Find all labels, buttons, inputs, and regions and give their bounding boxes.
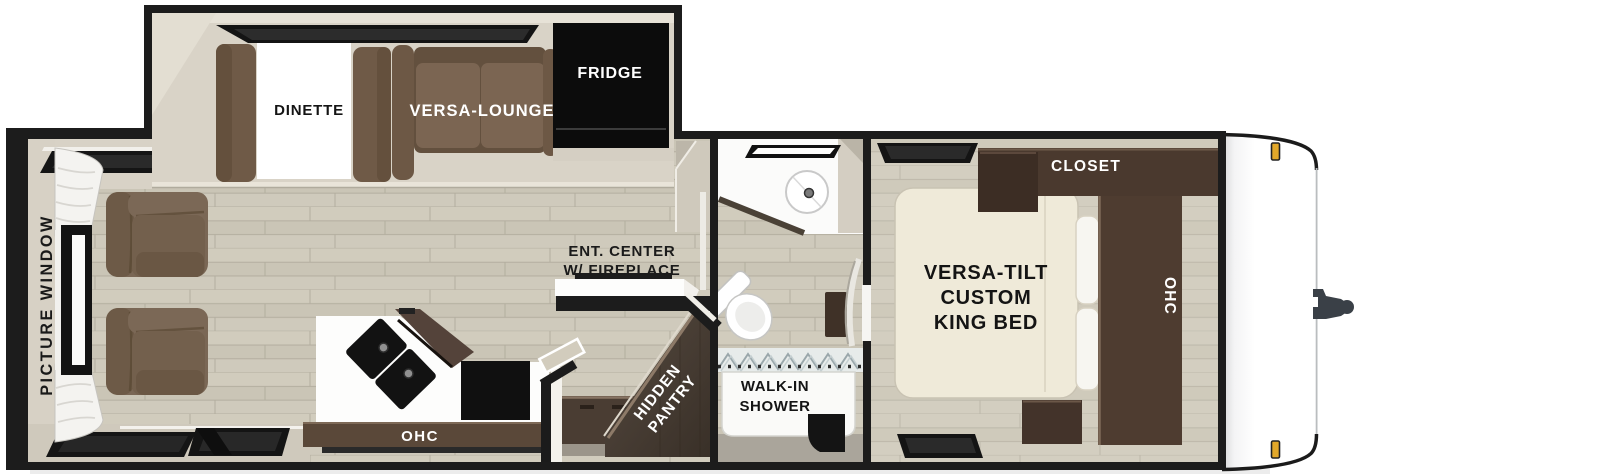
svg-text:CLOSET: CLOSET [1051,158,1121,175]
svg-text:ENT. CENTER: ENT. CENTER [568,243,675,260]
svg-text:DINETTE: DINETTE [274,102,344,119]
svg-text:OHC: OHC [1161,277,1178,315]
svg-text:W/ FIREPLACE: W/ FIREPLACE [563,262,680,279]
svg-text:CUSTOM: CUSTOM [940,287,1031,309]
svg-text:FRIDGE: FRIDGE [577,65,642,82]
svg-text:PICTURE WINDOW: PICTURE WINDOW [38,214,56,396]
svg-text:KING BED: KING BED [934,312,1038,334]
svg-text:VERSA-LOUNGE: VERSA-LOUNGE [410,102,555,120]
svg-text:SHOWER: SHOWER [739,398,810,415]
svg-text:VERSA-TILT: VERSA-TILT [924,262,1048,284]
svg-text:WALK-IN: WALK-IN [741,378,809,395]
svg-text:OHC: OHC [401,428,439,445]
